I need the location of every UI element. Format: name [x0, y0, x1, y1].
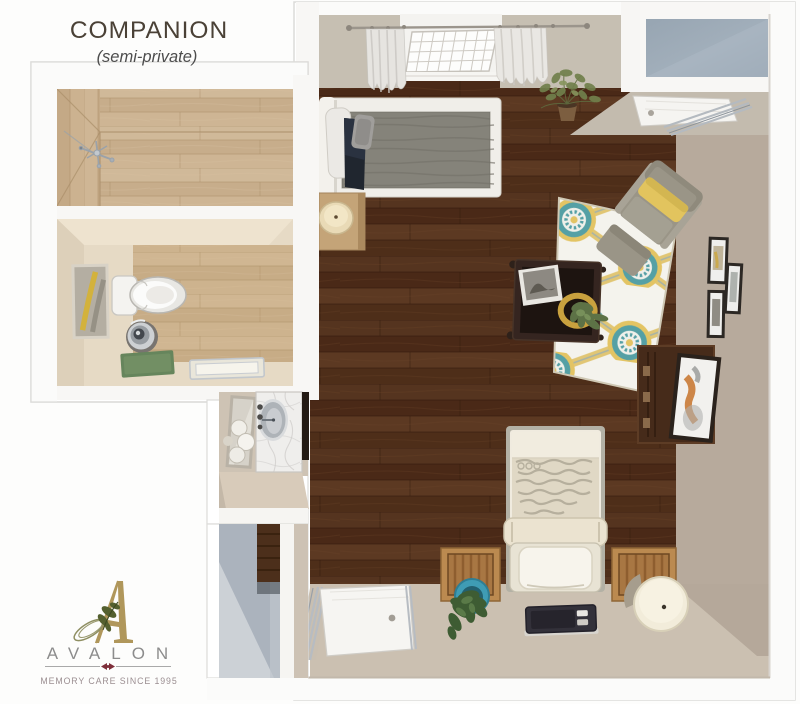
svg-text:(semi-private): (semi-private) — [97, 48, 198, 66]
svg-text:MEMORY CARE SINCE 1995: MEMORY CARE SINCE 1995 — [40, 676, 177, 686]
svg-text:AVALON: AVALON — [47, 644, 179, 663]
svg-text:COMPANION: COMPANION — [70, 17, 228, 44]
